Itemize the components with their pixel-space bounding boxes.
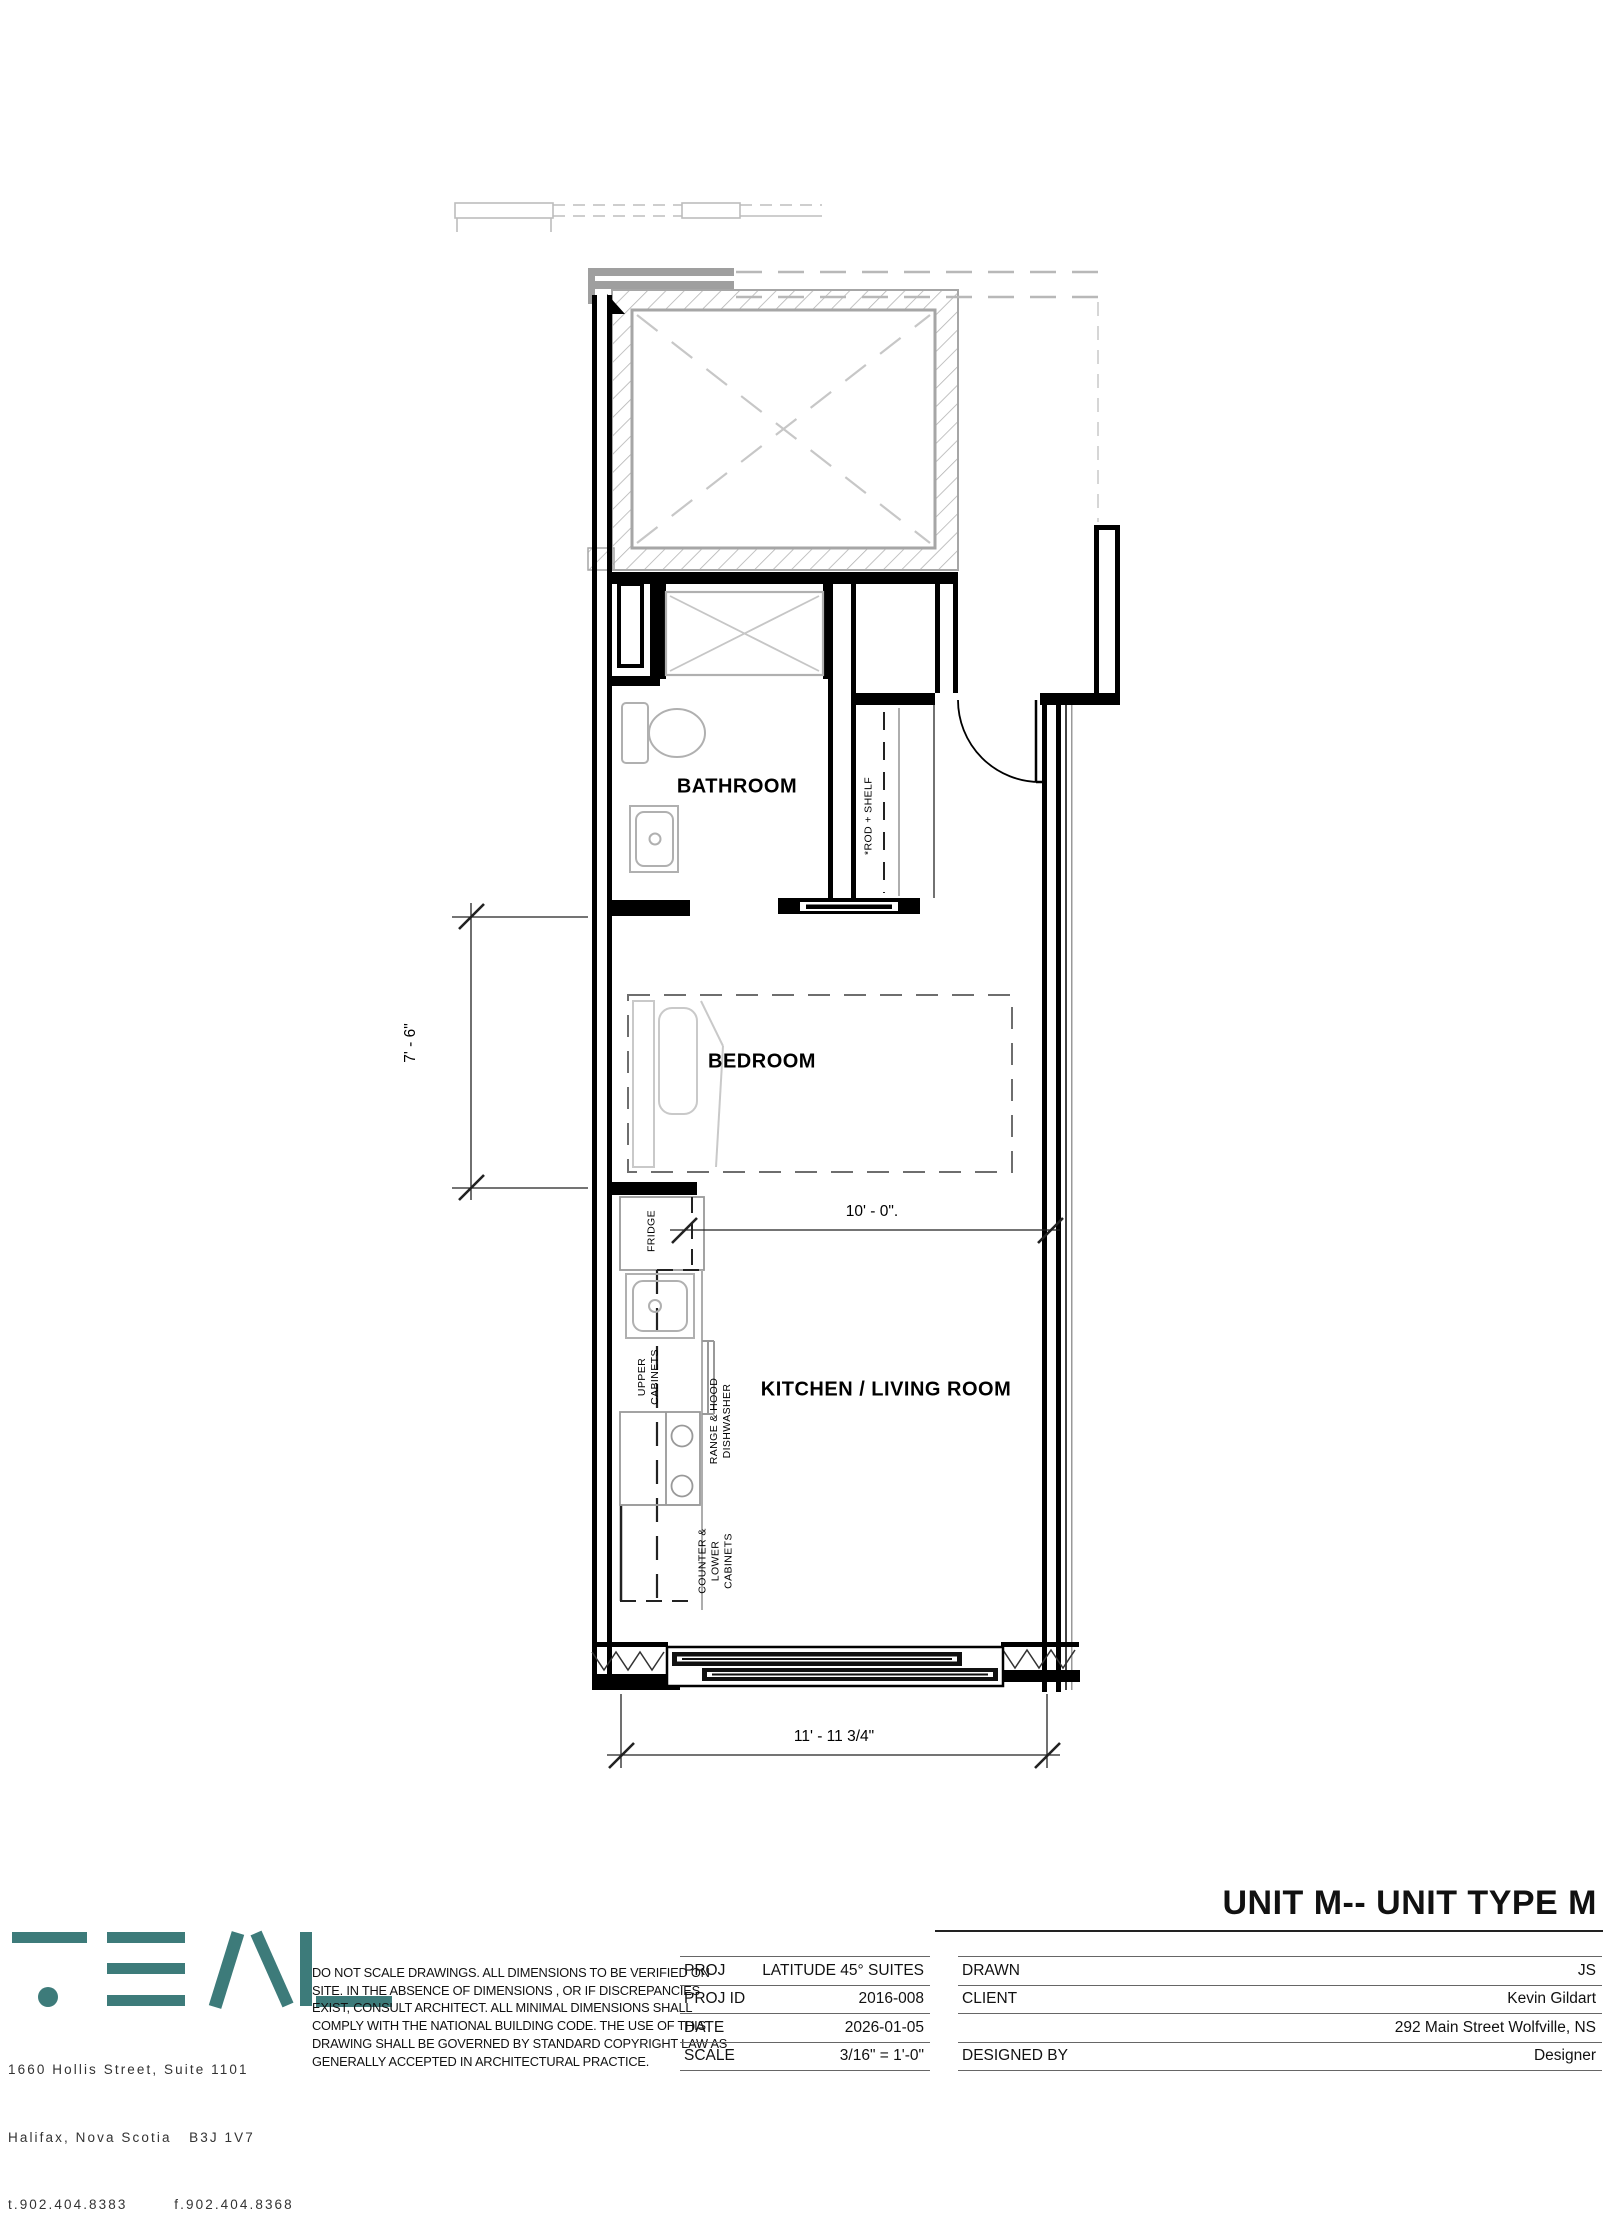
bedroom-label: BEDROOM bbox=[708, 1051, 816, 1074]
elevator-shaft bbox=[588, 268, 1098, 570]
bathroom-sink bbox=[630, 806, 678, 872]
disclaimer-line: DO NOT SCALE DRAWINGS. ALL DIMENSIONS TO… bbox=[312, 1964, 727, 1982]
fridge bbox=[620, 1197, 704, 1270]
row-value: 292 Main Street Wolfville, NS bbox=[1395, 2019, 1602, 2037]
firm-address: 1660 Hollis Street, Suite 1101 Halifax, … bbox=[8, 2014, 294, 2239]
address-line-2: Halifax, Nova Scotia B3J 1V7 bbox=[8, 2127, 294, 2150]
bathroom-label: BATHROOM bbox=[677, 776, 797, 799]
row-value: JS bbox=[1578, 1962, 1602, 1980]
dimension-living: 10' - 0". bbox=[846, 1203, 898, 1221]
range-dishwasher-label: RANGE & HOOD DISHWASHER bbox=[708, 1378, 734, 1464]
row-label: DRAWN bbox=[958, 1962, 1020, 1980]
table-row: DATE 2026-01-05 bbox=[680, 2014, 930, 2043]
toilet bbox=[622, 703, 705, 763]
disclaimer-line: EXIST, CONSULT ARCHITECT. ALL MINIMAL DI… bbox=[312, 1999, 727, 2017]
row-value: 3/16" = 1'-0" bbox=[840, 2047, 930, 2065]
address-line-3: t.902.404.8383 f.902.404.8368 bbox=[8, 2194, 294, 2217]
row-label: CLIENT bbox=[958, 1990, 1017, 2008]
dimension-bedroom: 7' - 6" bbox=[402, 1023, 420, 1062]
floor-plan-drawing bbox=[0, 0, 1608, 1810]
upper-floor-outline bbox=[455, 203, 822, 232]
row-label: SCALE bbox=[680, 2047, 735, 2065]
project-table: PROJ LATITUDE 45° SUITES PROJ ID 2016-00… bbox=[680, 1956, 930, 2071]
dimension-unit: 11' - 11 3/4" bbox=[794, 1728, 874, 1746]
disclaimer: DO NOT SCALE DRAWINGS. ALL DIMENSIONS TO… bbox=[312, 1964, 727, 2070]
range bbox=[620, 1412, 700, 1505]
dimension-lines bbox=[452, 903, 1063, 1768]
info-table: DRAWN JS CLIENT Kevin Gildart 292 Main S… bbox=[958, 1956, 1602, 2071]
address-line-1: 1660 Hollis Street, Suite 1101 bbox=[8, 2059, 294, 2082]
row-label: PROJ ID bbox=[680, 1990, 745, 2008]
window bbox=[667, 1647, 1003, 1686]
row-value: 2026-01-05 bbox=[845, 2019, 930, 2037]
row-label: PROJ bbox=[680, 1962, 725, 1980]
table-row: PROJ ID 2016-008 bbox=[680, 1986, 930, 2015]
table-row: CLIENT Kevin Gildart bbox=[958, 1986, 1602, 2015]
row-value: Designer bbox=[1534, 2047, 1602, 2065]
kitchen-sink bbox=[626, 1274, 694, 1338]
upper-cabinets-label: UPPER CABINETS bbox=[636, 1349, 662, 1405]
bathtub bbox=[666, 592, 823, 675]
fridge-label: FRIDGE bbox=[645, 1210, 658, 1252]
title-rule bbox=[935, 1930, 1603, 1932]
row-value: 2016-008 bbox=[858, 1990, 930, 2008]
entry-door bbox=[958, 700, 1045, 782]
row-label: DESIGNED BY bbox=[958, 2047, 1068, 2065]
row-value: LATITUDE 45° SUITES bbox=[762, 1962, 930, 1980]
kitchen-living-label: KITCHEN / LIVING ROOM bbox=[761, 1379, 1012, 1402]
table-row: DESIGNED BY Designer bbox=[958, 2043, 1602, 2072]
row-value: Kevin Gildart bbox=[1507, 1990, 1602, 2008]
closet-rod-shelf bbox=[884, 705, 934, 898]
table-row: 292 Main Street Wolfville, NS bbox=[958, 2014, 1602, 2043]
disclaimer-line: SITE. IN THE ABSENCE OF DIMENSIONS , OR … bbox=[312, 1982, 727, 2000]
bed bbox=[628, 995, 1012, 1172]
disclaimer-line: COMPLY WITH THE NATIONAL BUILDING CODE. … bbox=[312, 2017, 727, 2035]
row-label: DATE bbox=[680, 2019, 724, 2037]
table-row: SCALE 3/16" = 1'-0" bbox=[680, 2043, 930, 2072]
disclaimer-line: GENERALLY ACCEPTED IN ARCHITECTURAL PRAC… bbox=[312, 2053, 727, 2071]
sheet-title: UNIT M-- UNIT TYPE M bbox=[1222, 1884, 1597, 1923]
rod-shelf-label: *ROD + SHELF bbox=[862, 777, 875, 855]
table-row: PROJ LATITUDE 45° SUITES bbox=[680, 1957, 930, 1986]
counter-lower-label: COUNTER & LOWER CABINETS bbox=[696, 1528, 735, 1593]
disclaimer-line: DRAWING SHALL BE GOVERNED BY STANDARD CO… bbox=[312, 2035, 727, 2053]
table-row: DRAWN JS bbox=[958, 1957, 1602, 1986]
